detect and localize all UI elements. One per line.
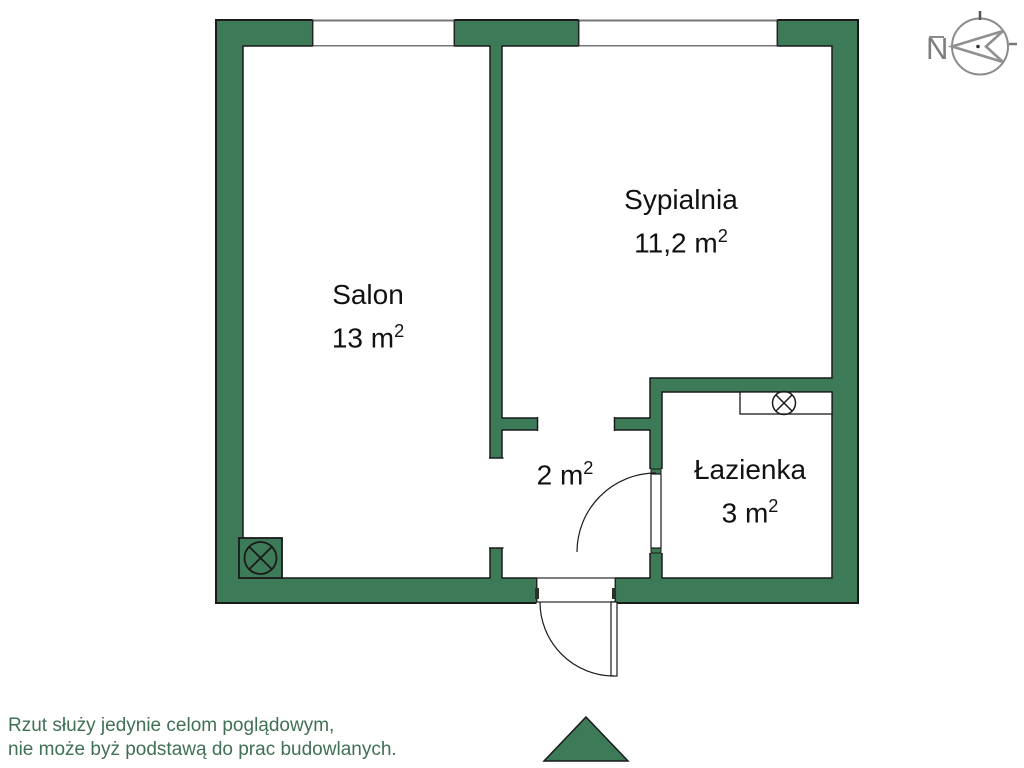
hall-area: 2 m2 [505, 450, 625, 493]
floorplan-canvas: Salon 13 m2 Sypialnia 11,2 m2 Łazienka 3… [0, 0, 1024, 768]
disclaimer-line-1: Rzut służy jedynie celom poglądowym, [8, 714, 397, 738]
area-value: 2 m [537, 459, 584, 490]
salon-name: Salon [298, 277, 438, 313]
entrance-door [535, 577, 617, 677]
hall-sypialnia-opening [538, 417, 615, 432]
sypialnia-area: 11,2 m2 [611, 218, 751, 261]
lazienka-label: Łazienka 3 m2 [680, 452, 820, 531]
area-sup: 2 [583, 458, 593, 478]
disclaimer: Rzut służy jedynie celom poglądowym, nie… [8, 714, 397, 762]
salon-hall-opening [489, 458, 504, 548]
window-sypialnia [578, 19, 778, 48]
area-value: 13 m [332, 322, 394, 353]
salon-area: 13 m2 [298, 313, 438, 356]
chimney-vent-icon [239, 538, 282, 578]
area-sup: 2 [394, 321, 404, 341]
door-swing-arc [540, 602, 614, 676]
salon-label: Salon 13 m2 [298, 277, 438, 356]
door-leaf [611, 602, 617, 676]
compass-north-label: N [926, 33, 948, 64]
area-value: 11,2 m [634, 227, 718, 258]
lazienka-name: Łazienka [680, 452, 820, 488]
sypialnia-label: Sypialnia 11,2 m2 [611, 182, 751, 261]
area-value: 3 m [722, 497, 769, 528]
floorplan-drawing [0, 0, 1024, 768]
sypialnia-name: Sypialnia [611, 182, 751, 218]
door-jamb [612, 588, 616, 599]
window-salon [312, 19, 455, 48]
door-leaf [651, 474, 661, 548]
hall-label: 2 m2 [505, 450, 625, 493]
door-jamb [535, 588, 539, 599]
door-jamb [651, 548, 661, 553]
bathroom-vent-icon [740, 392, 832, 415]
lazienka-area: 3 m2 [680, 488, 820, 531]
entrance-arrow-icon [544, 717, 628, 761]
area-sup: 2 [718, 226, 728, 246]
disclaimer-line-2: nie może byż podstawą do prac budowlanyc… [8, 738, 397, 762]
area-sup: 2 [768, 496, 778, 516]
